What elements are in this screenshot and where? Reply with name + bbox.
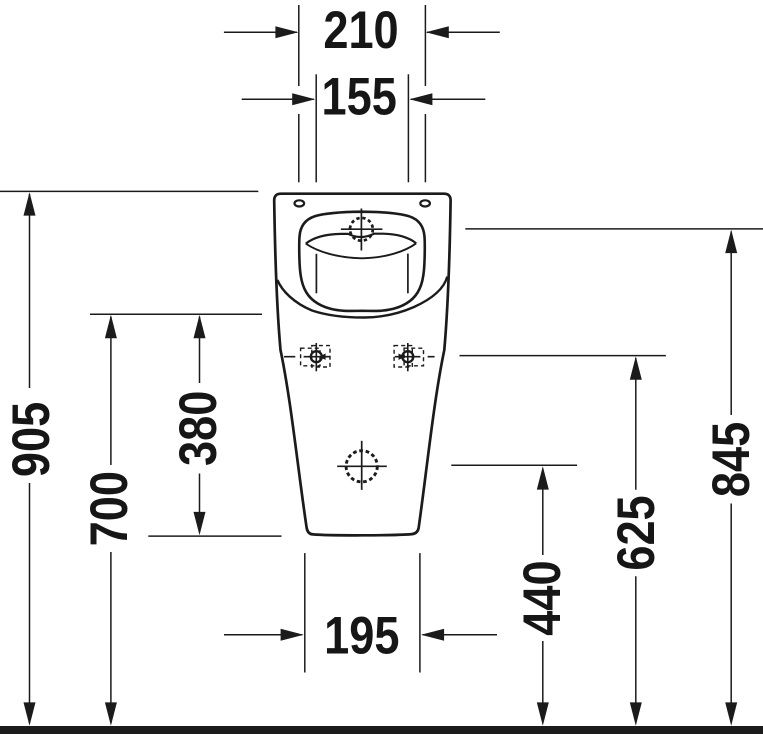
svg-text:195: 195 <box>324 607 399 665</box>
svg-text:905: 905 <box>3 402 61 477</box>
svg-text:155: 155 <box>322 68 397 126</box>
svg-text:210: 210 <box>323 2 398 60</box>
svg-text:440: 440 <box>514 560 572 635</box>
svg-text:625: 625 <box>608 495 666 570</box>
svg-text:380: 380 <box>170 391 228 466</box>
svg-text:845: 845 <box>703 422 761 497</box>
svg-text:700: 700 <box>81 471 139 546</box>
